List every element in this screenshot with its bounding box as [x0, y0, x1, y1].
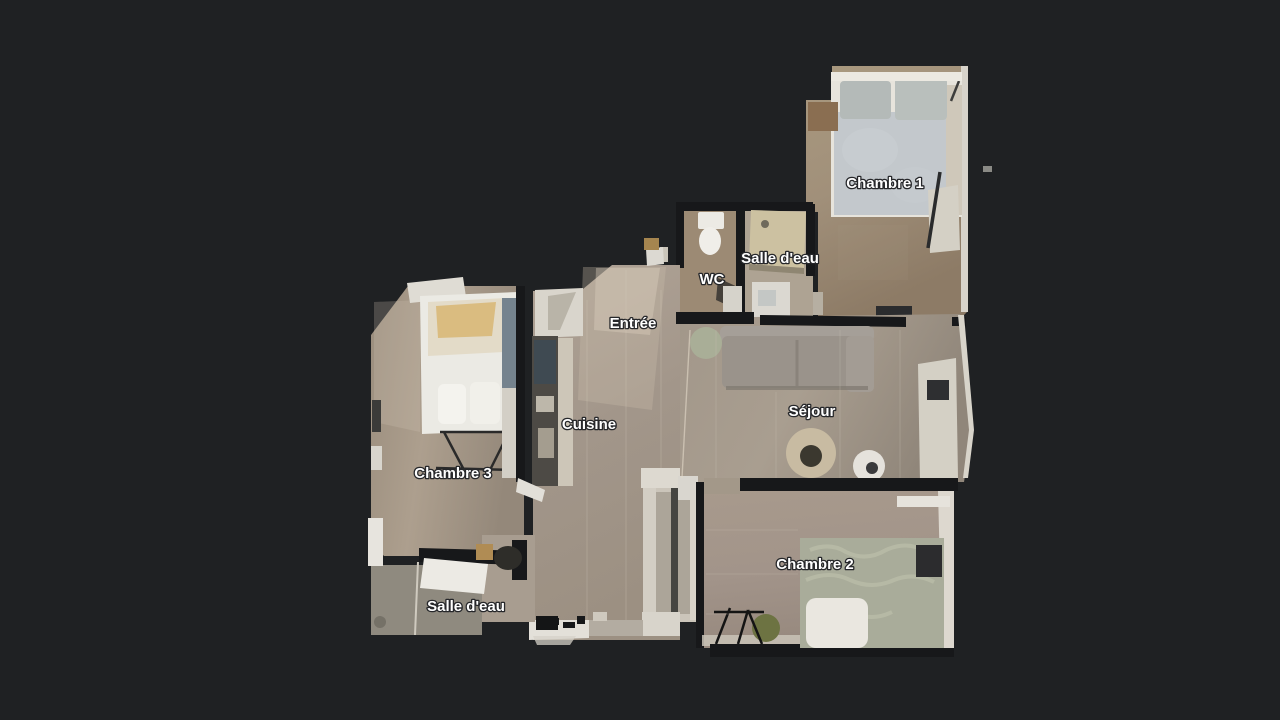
svg-text:Chambre 1: Chambre 1: [846, 175, 924, 192]
svg-text:Chambre 2: Chambre 2: [776, 556, 854, 573]
svg-text:WC: WC: [700, 271, 725, 288]
svg-text:Cuisine: Cuisine: [562, 416, 616, 433]
svg-text:Entrée: Entrée: [610, 315, 657, 332]
svg-text:Salle d'eau: Salle d'eau: [427, 598, 505, 615]
svg-text:Séjour: Séjour: [789, 403, 836, 420]
svg-text:Salle d'eau: Salle d'eau: [741, 250, 819, 267]
svg-text:Chambre 3: Chambre 3: [414, 465, 492, 482]
